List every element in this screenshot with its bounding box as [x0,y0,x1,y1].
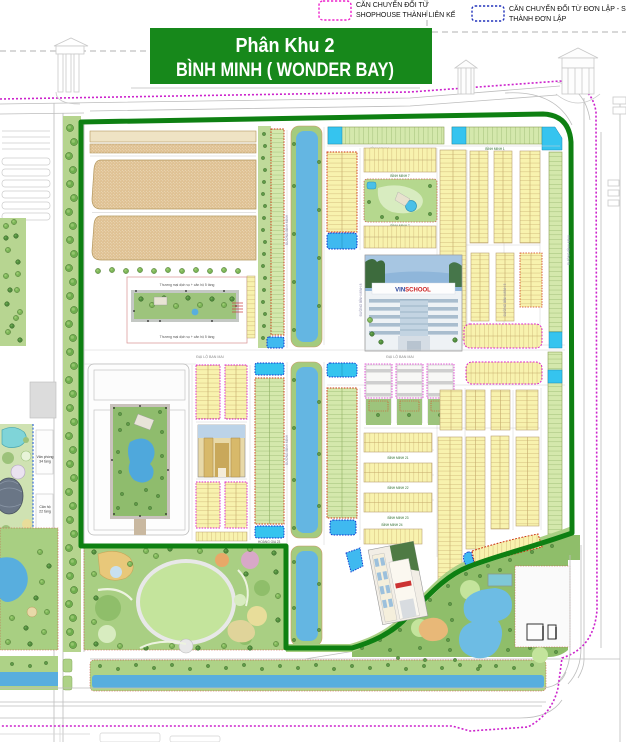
svg-text:CĂN CHUYỂN ĐỔI TỪ: CĂN CHUYỂN ĐỔI TỪ [356,0,429,9]
svg-text:VINSCHOOL: VINSCHOOL [395,288,431,294]
svg-text:Phân Khu 2: Phân Khu 2 [236,35,335,57]
svg-text:22 tầng: 22 tầng [39,510,51,514]
svg-text:THÀNH ĐƠN LẬP: THÀNH ĐƠN LẬP [509,14,567,23]
svg-text:ĐƯỜNG BÌNH MINH: ĐƯỜNG BÌNH MINH [284,214,289,245]
svg-text:ĐƯỜNG BÌNH MINH 8: ĐƯỜNG BÌNH MINH 8 [358,283,363,316]
svg-text:BÌNH MINH 23: BÌNH MINH 23 [387,516,408,520]
svg-text:Thương mại dịch vụ + căn hộ 5: Thương mại dịch vụ + căn hộ 5 tầng [160,335,215,339]
svg-text:Thương mại dịch vụ + căn hộ 5: Thương mại dịch vụ + căn hộ 5 tầng [160,283,215,287]
svg-text:BÌNH MINH 21: BÌNH MINH 21 [387,456,408,460]
svg-text:BÌNH MINH 24: BÌNH MINH 24 [381,523,402,527]
svg-text:ĐẠI LỘ BAN MAI: ĐẠI LỘ BAN MAI [386,354,414,359]
svg-text:ĐƯỜNG BÌNH MINH: ĐƯỜNG BÌNH MINH [284,434,289,465]
svg-text:BÌNH MINH 1: BÌNH MINH 1 [485,147,505,151]
svg-text:CĂN CHUYỂN ĐỔI TỪ ĐƠN LẬP - SH: CĂN CHUYỂN ĐỔI TỪ ĐƠN LẬP - SH [509,4,626,13]
svg-text:BÌNH MINH ( WONDER BAY): BÌNH MINH ( WONDER BAY) [176,58,394,81]
svg-text:Căn hộ: Căn hộ [39,505,50,509]
svg-text:HOÀNG GIA 23: HOÀNG GIA 23 [258,540,281,544]
svg-text:ĐƯỜNG BÌNH MINH 5: ĐƯỜNG BÌNH MINH 5 [502,283,507,316]
svg-text:ĐẠI LỘ BAN MAI: ĐẠI LỘ BAN MAI [196,354,224,359]
svg-text:Văn phòng: Văn phòng [37,455,54,459]
svg-text:ĐƯỜNG BÌNH MINH: ĐƯỜNG BÌNH MINH [566,234,571,265]
svg-text:BÌNH MINH 7: BÌNH MINH 7 [390,174,410,178]
svg-text:34 tầng: 34 tầng [39,460,51,464]
svg-text:BÌNH MINH 22: BÌNH MINH 22 [387,486,408,490]
